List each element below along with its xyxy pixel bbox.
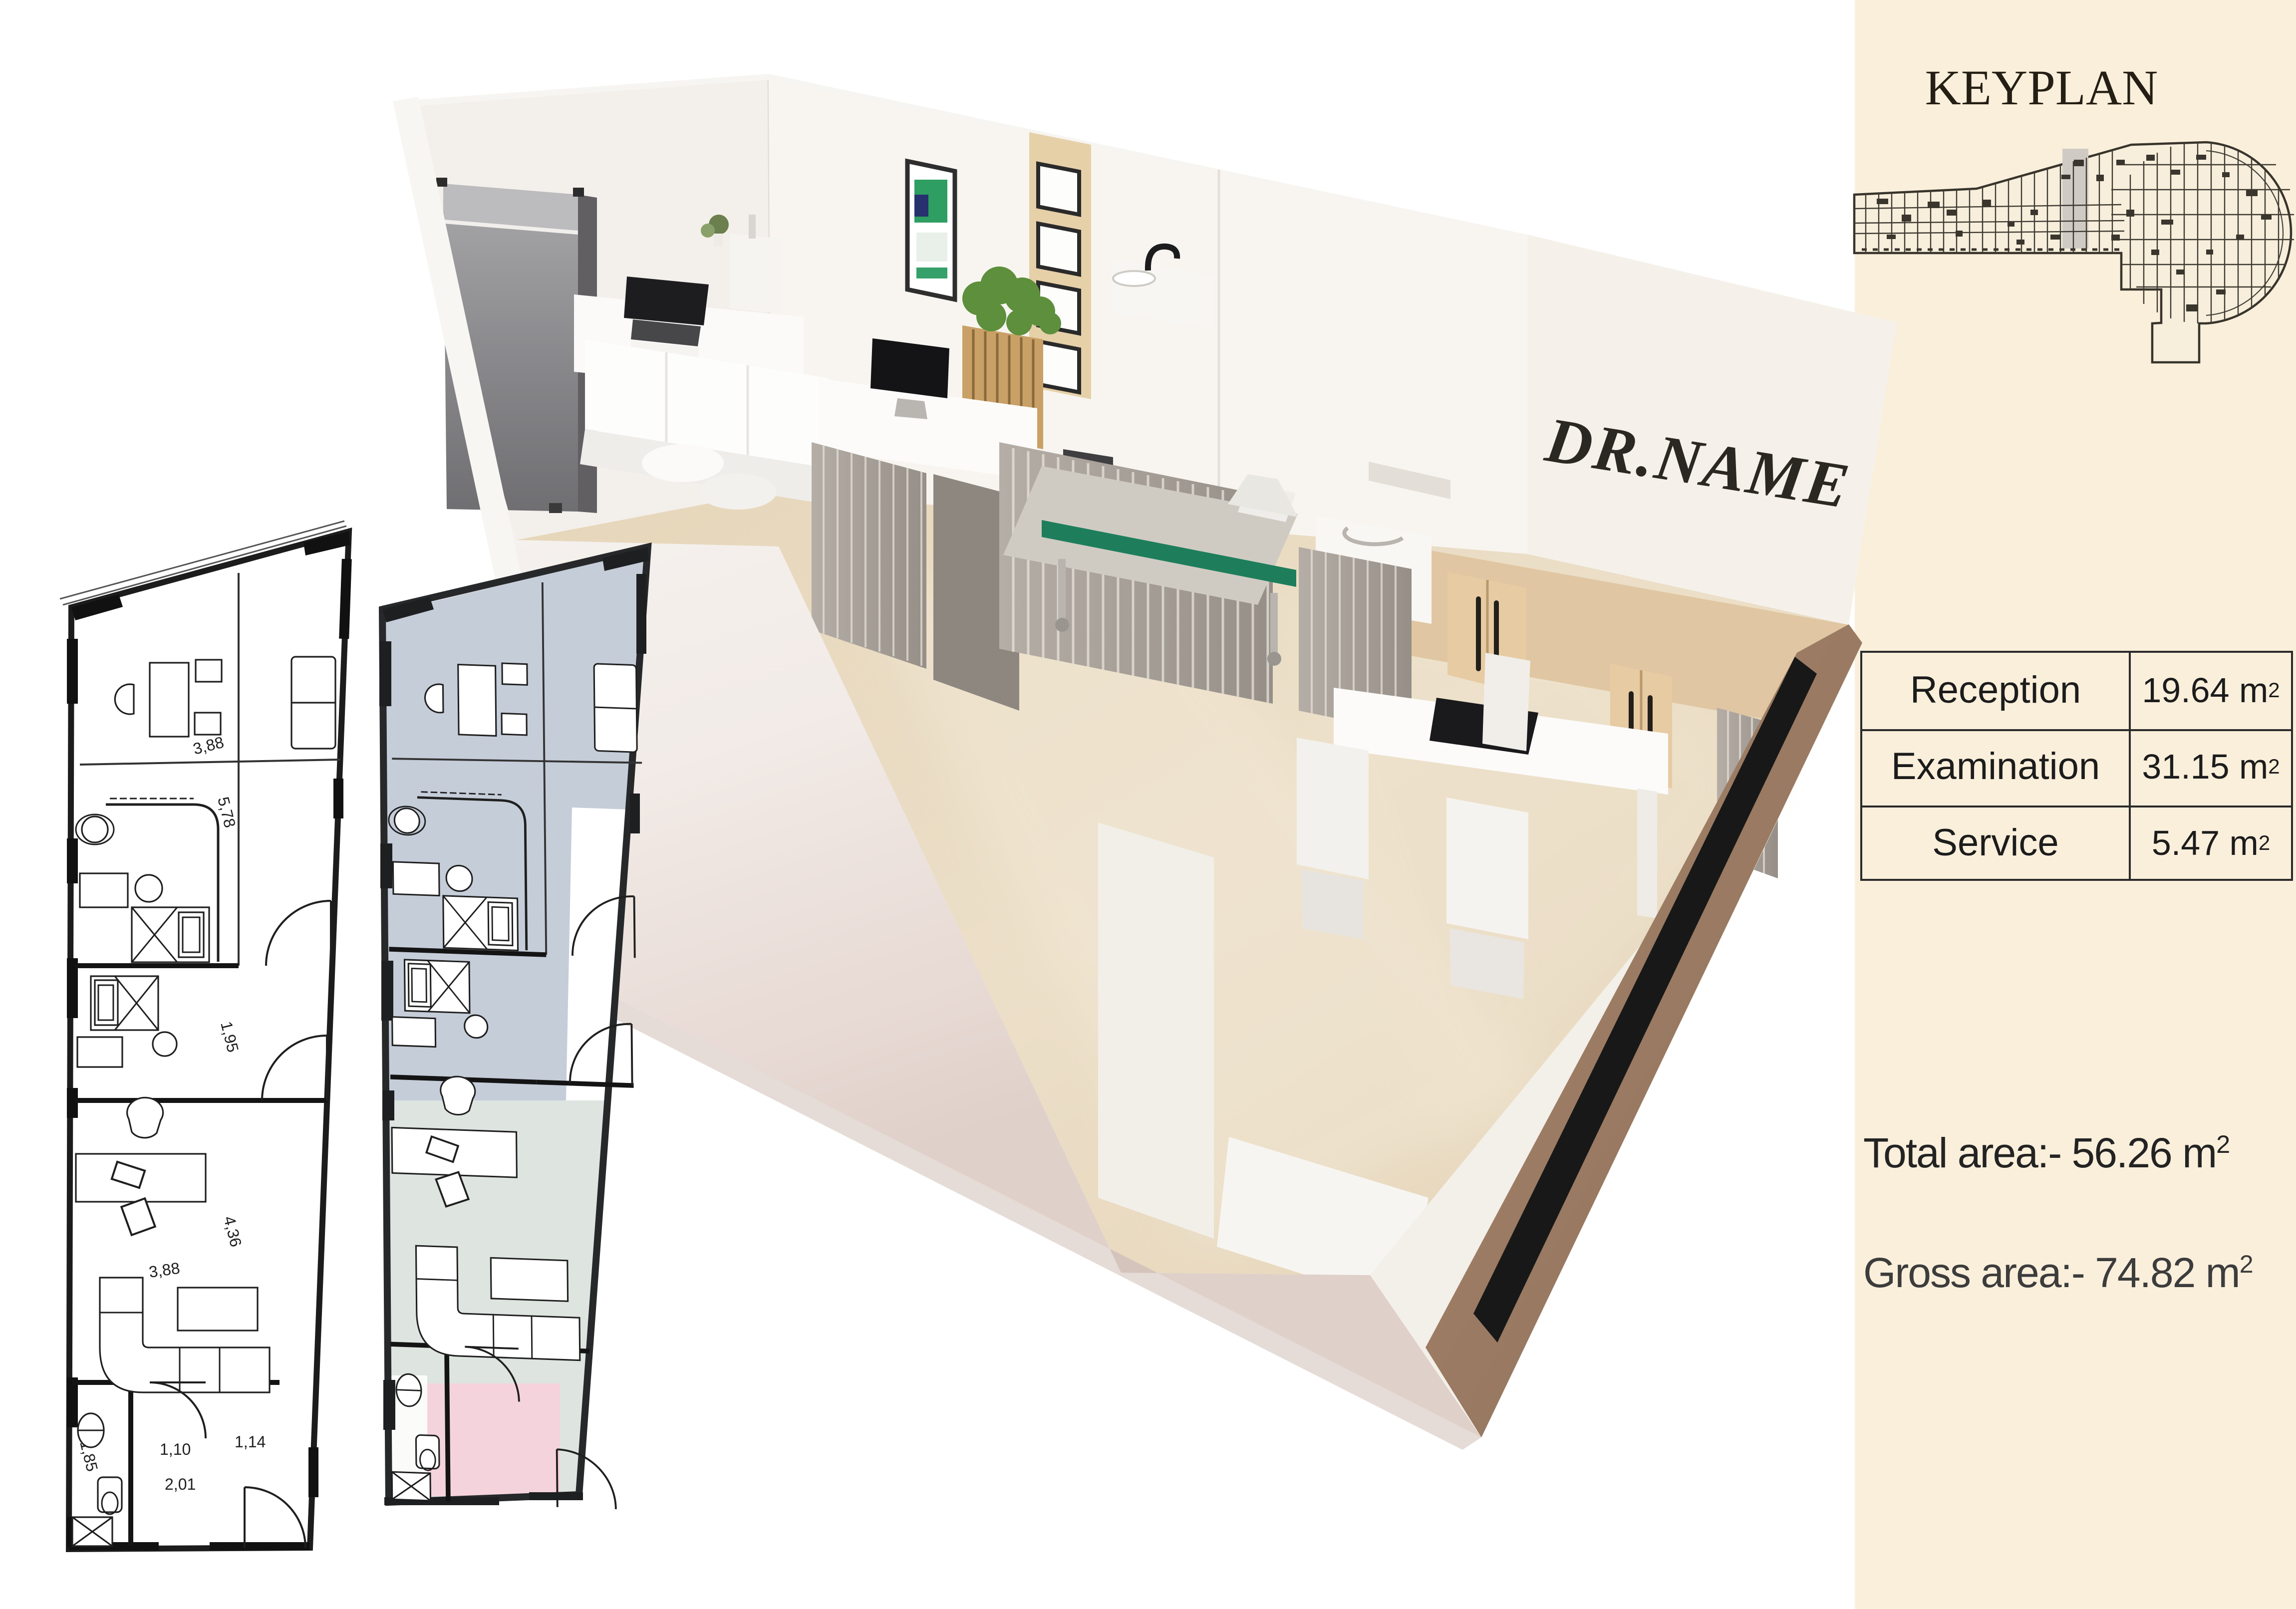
- svg-text:2,01: 2,01: [165, 1475, 196, 1493]
- svg-text:1,10: 1,10: [160, 1440, 191, 1458]
- svg-text:1,14: 1,14: [235, 1433, 266, 1451]
